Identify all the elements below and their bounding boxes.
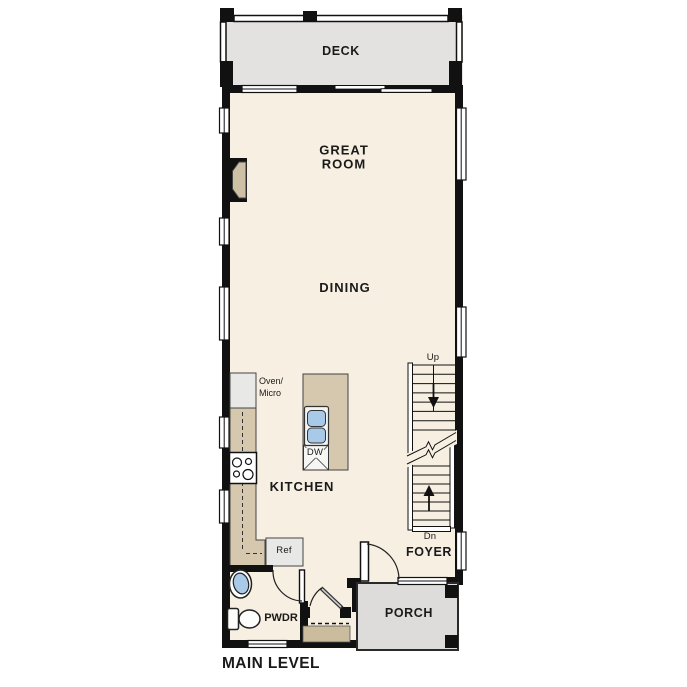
front-door-leaf bbox=[361, 542, 369, 581]
oven-micro-line2: Micro bbox=[259, 387, 283, 399]
stair-stringer-right bbox=[450, 444, 455, 528]
dining-label: DINING bbox=[319, 281, 371, 295]
main-level-title: MAIN LEVEL bbox=[222, 655, 320, 673]
pwdr-label: PWDR bbox=[264, 612, 298, 624]
porch-post bbox=[445, 635, 458, 648]
oven-micro-line1: Oven/ bbox=[259, 375, 283, 387]
deck-label: DECK bbox=[322, 45, 360, 59]
deck-post bbox=[449, 61, 462, 87]
oven-micro-label: Oven/ Micro bbox=[259, 375, 283, 399]
deck-rail-top bbox=[234, 16, 448, 22]
great-room-label: GREAT ROOM bbox=[319, 144, 369, 173]
deck-rail-right bbox=[457, 22, 463, 62]
fireplace bbox=[225, 158, 247, 202]
deck-post bbox=[220, 8, 234, 22]
great-room-line1: GREAT bbox=[319, 144, 369, 158]
floor-plan-page: DECK GREAT ROOM DINING Up Oven/ Micro DW… bbox=[0, 0, 687, 687]
deck-rail-left bbox=[221, 22, 227, 62]
entry-wall-stub-right bbox=[340, 607, 351, 618]
stairs-up-label: Up bbox=[427, 353, 440, 363]
stair-stringer-left bbox=[408, 363, 413, 530]
great-room-line2: ROOM bbox=[319, 158, 369, 172]
refrigerator-label: Ref bbox=[276, 546, 291, 556]
floor-plan-drawing bbox=[0, 0, 687, 687]
pwdr-top-wall bbox=[222, 565, 273, 572]
entry-step bbox=[303, 624, 350, 643]
island-sink bbox=[305, 407, 329, 446]
dishwasher-label: DW bbox=[306, 448, 324, 458]
toilet bbox=[228, 609, 261, 630]
window-bottom bbox=[248, 641, 287, 648]
pwdr-sink bbox=[230, 570, 252, 598]
deck-post bbox=[220, 61, 233, 87]
cooktop bbox=[230, 453, 257, 484]
porch-label: PORCH bbox=[385, 607, 433, 621]
deck-post bbox=[448, 8, 462, 22]
entry-wall-stub-left bbox=[300, 607, 310, 618]
oven-micro-box bbox=[230, 373, 256, 408]
stairs-down-label: Dn bbox=[424, 532, 437, 542]
foyer-label: FOYER bbox=[406, 546, 452, 560]
kitchen-label: KITCHEN bbox=[270, 480, 335, 494]
pwdr-door-leaf bbox=[300, 570, 305, 603]
deck-post bbox=[303, 11, 317, 22]
porch-post bbox=[445, 585, 458, 598]
